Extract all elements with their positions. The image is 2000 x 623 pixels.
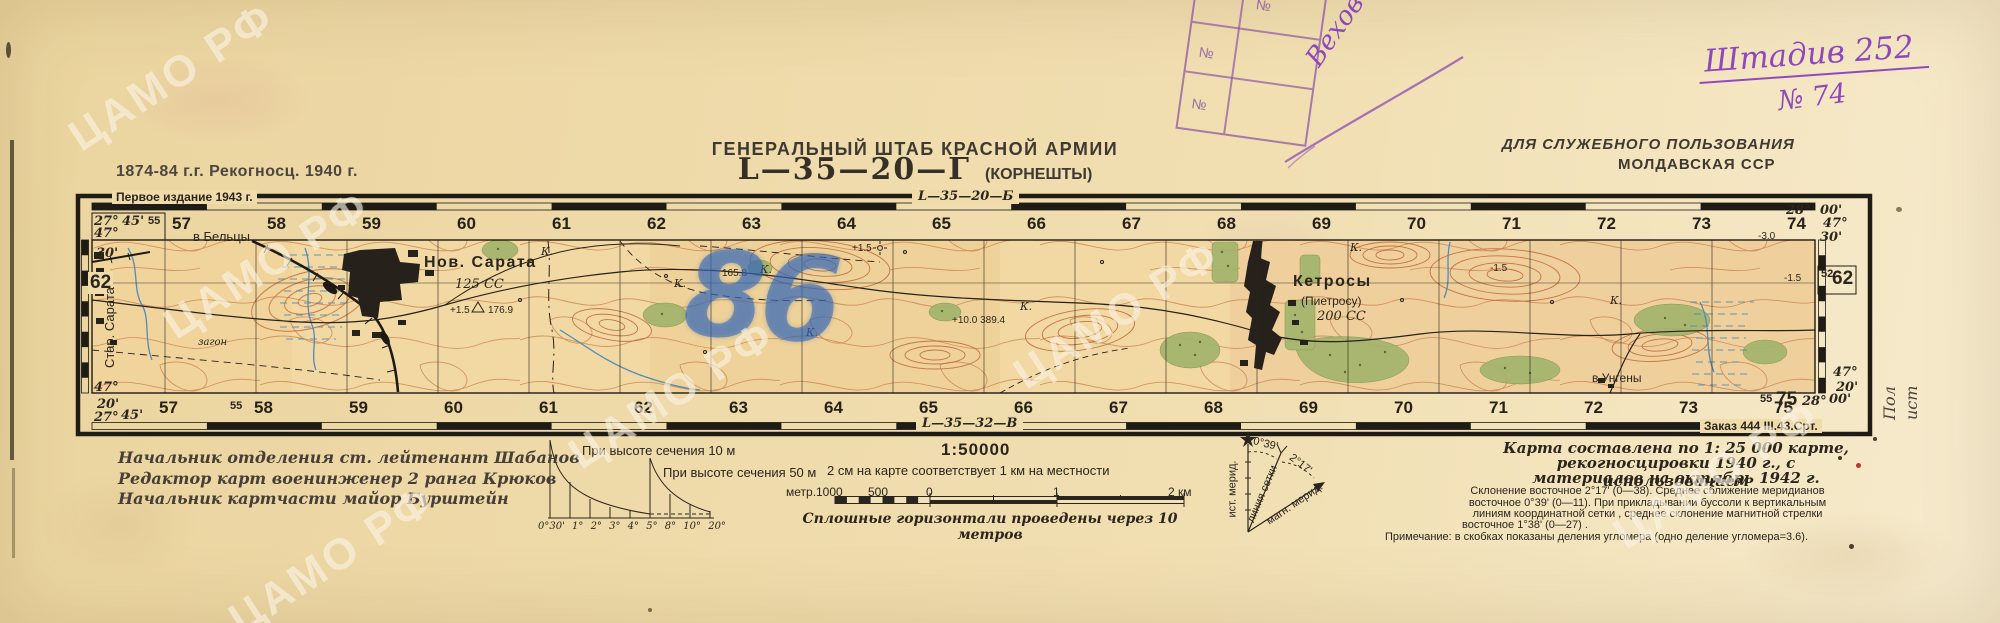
print-order: Заказ 444 III.43.Срт.: [1700, 419, 1822, 433]
adjacent-sheet-top: L—35—20—Б: [912, 189, 1019, 204]
kurgan-label: К.: [1610, 294, 1622, 307]
declination-text-line: восточное 1°38' (0—27) .: [1462, 519, 1588, 531]
grid-number: 68: [1213, 214, 1308, 234]
uglomer-note: Примечание: в скобках показаны деления у…: [1385, 531, 1808, 543]
grid-number: 66: [1010, 398, 1105, 418]
grid-number: 72: [1593, 214, 1688, 234]
bar-label-1000: 1000: [816, 485, 843, 499]
corner-tl-lat-deg: 47°: [94, 226, 119, 241]
corner-tr-lat-deg: 47°: [1823, 216, 1848, 231]
margin-note-line: Пол: [1880, 335, 1899, 420]
signature-line: Начальник отделения ст. лейтенант Шабано…: [118, 448, 580, 467]
sheet-code: L—35—20—Г: [738, 155, 971, 185]
village-info-nov-sarata: 125 СС: [455, 277, 504, 292]
declination-text-line: Склонение восточное 2°17' (0—38). Средне…: [1455, 485, 1840, 497]
grid-number: 69: [1308, 214, 1403, 234]
paper-speck: [6, 42, 11, 58]
grid-number: 71: [1485, 398, 1580, 418]
grid-number: 62: [630, 398, 725, 418]
degree-label: 4°: [628, 521, 639, 532]
stamp-no-sign: №: [1198, 44, 1215, 62]
spot-height: -1.5: [1784, 273, 1801, 284]
grid-number: 61: [548, 214, 643, 234]
grid-number: 59: [345, 398, 440, 418]
grid-number: 70: [1390, 398, 1485, 418]
grid-number: 59: [358, 214, 453, 234]
spot-height: +1.5: [852, 243, 872, 254]
grid-number: 60: [440, 398, 535, 418]
bar-label-1km: 1: [1053, 485, 1060, 499]
paper-speck: [1896, 207, 1902, 212]
corner-bl-lon-deg: 27°: [94, 410, 119, 425]
bar-unit-label: метр.: [786, 485, 816, 499]
grid-number: 67: [1105, 398, 1200, 418]
spot-height: +1.5: [450, 305, 470, 316]
map-sheet-scan: 1874-84 г.г. Рекогносц. 1940 г. ГЕНЕРАЛЬ…: [0, 0, 2000, 623]
grid-numbers-top: 575859606162636465666768697071727374: [168, 214, 1878, 234]
grid-number: 60: [453, 214, 548, 234]
bottom-small-55: 55: [230, 400, 242, 412]
paper-speck: [648, 608, 652, 612]
margin-note: Пол ист: [1880, 335, 1921, 420]
grid-numbers-bottom: 575859606162636465666768697071727375: [155, 398, 1865, 418]
grid-number: 64: [820, 398, 915, 418]
spot-height: -3.0: [1758, 231, 1775, 242]
grid-number: 65: [915, 398, 1010, 418]
grid-number: 65: [928, 214, 1023, 234]
grid-number: 61: [535, 398, 630, 418]
village-label-star-sarata: Стар. Сарата: [102, 248, 117, 368]
adjacent-sheet-bottom: L—35—32—В: [916, 416, 1023, 431]
corner-tl-lon-min: 45': [122, 214, 144, 229]
scale-note: 2 см на карте соответствует 1 км на мест…: [827, 463, 1110, 478]
grid-number: 73: [1675, 398, 1770, 418]
grid-number: 69: [1295, 398, 1390, 418]
corner-br-lon-deg: 28°: [1802, 394, 1827, 409]
slope-degree-labels: 0°30'1°2°3°4°5°8°10°20°: [538, 521, 726, 532]
degree-label: 1°: [572, 521, 583, 532]
paper-speck: [1849, 544, 1854, 549]
degree-label: 0°30': [538, 521, 565, 532]
grid-number: 58: [250, 398, 345, 418]
kurgan-label: К.: [1350, 241, 1362, 254]
slope-caption-10m: При высоте сечения 10 м: [582, 443, 735, 458]
corner-tl-small: 55: [148, 215, 160, 227]
stamp-no-sign: №: [1255, 0, 1272, 14]
grid-number: 63: [725, 398, 820, 418]
degree-label: 5°: [646, 521, 657, 532]
corner-bl-lon-min: 45': [121, 408, 143, 423]
classification-note: ДЛЯ СЛУЖЕБНОГО ПОЛЬЗОВАНИЯ: [1502, 136, 1795, 153]
red-speck: [1856, 463, 1861, 468]
zagon-label: загон: [198, 337, 227, 348]
village-label-nov-sarata: Нов. Сарата: [424, 254, 537, 272]
stamp-no-sign: №: [1190, 95, 1207, 113]
bar-label-500: 500: [868, 485, 888, 499]
corner-br-lat-deg: 47°: [1833, 365, 1858, 380]
grid-number: 71: [1498, 214, 1593, 234]
grid-number: 64: [833, 214, 928, 234]
corner-br-small: 55: [1760, 393, 1772, 405]
sheet-code-row: L—35—20—Г (КОРНЕШТЫ): [700, 155, 1130, 185]
kurgan-label: К.: [541, 245, 553, 258]
slope-caption-50m: При высоте сечения 50 м: [663, 465, 816, 480]
grid-number: 67: [1118, 214, 1213, 234]
corner-tr-lat-min: 30': [1820, 230, 1842, 245]
first-edition-note: Первое издание 1943 г.: [112, 190, 257, 204]
corner-br-grid: 75: [1776, 389, 1797, 411]
contour-interval-note: Сплошные горизонтали проведены через 10 …: [780, 511, 1200, 543]
degree-label: 8°: [665, 521, 676, 532]
grid-number: 68: [1200, 398, 1295, 418]
signature-line: Начальник картчасти майор Бурштейн: [118, 489, 509, 508]
degree-label: 20°: [708, 521, 726, 532]
paper-speck: [1873, 437, 1877, 441]
exit-label-belcy: в Бельцы: [193, 229, 250, 244]
corner-br-lon-min: 00': [1829, 392, 1851, 407]
scale-label: 1:50000: [941, 440, 1010, 460]
margin-note-line: ист: [1902, 335, 1921, 420]
sheet-name: (КОРНЕШТЫ): [985, 166, 1092, 184]
degree-label: 3°: [609, 521, 620, 532]
spot-height: 176.9: [488, 305, 513, 316]
bar-label-0: 0: [926, 485, 933, 499]
village-alt-name-ketrosy: (Пиетросу): [1301, 294, 1361, 308]
corner-bl-lat-deg: 47°: [94, 380, 119, 395]
survey-dates: 1874-84 г.г. Рекогносц. 1940 г.: [116, 163, 358, 181]
bar-label-2km: 2 км: [1168, 485, 1192, 499]
spot-height: +10.0 389.4: [952, 315, 1005, 326]
signature-line: Редактор карт военинженер 2 ранга Крюков: [118, 469, 556, 488]
paper-speck: [1838, 456, 1842, 460]
kurgan-label: К.: [1020, 300, 1032, 313]
grid-number: 70: [1403, 214, 1498, 234]
true-meridian-label: ист. мерид.: [1227, 461, 1239, 518]
exit-label-ungeny: в Унгены: [1592, 371, 1641, 385]
spot-height: -1.5: [1490, 263, 1507, 274]
grid-number: 58: [263, 214, 358, 234]
blue-pencil-mark: 86: [680, 224, 839, 370]
grid-number: 66: [1023, 214, 1118, 234]
degree-label: 10°: [683, 521, 701, 532]
degree-label: 2°: [591, 521, 602, 532]
region-label: МОЛДАВСКАЯ ССР: [1618, 156, 1776, 173]
village-label-ketrosy: Кетросы: [1293, 273, 1372, 291]
grid-number: 72: [1580, 398, 1675, 418]
edge-right-grid: 62: [1832, 268, 1853, 290]
corner-tr-lon-deg: 28°: [1786, 203, 1811, 218]
village-info-ketrosy: 200 СС: [1317, 309, 1366, 324]
